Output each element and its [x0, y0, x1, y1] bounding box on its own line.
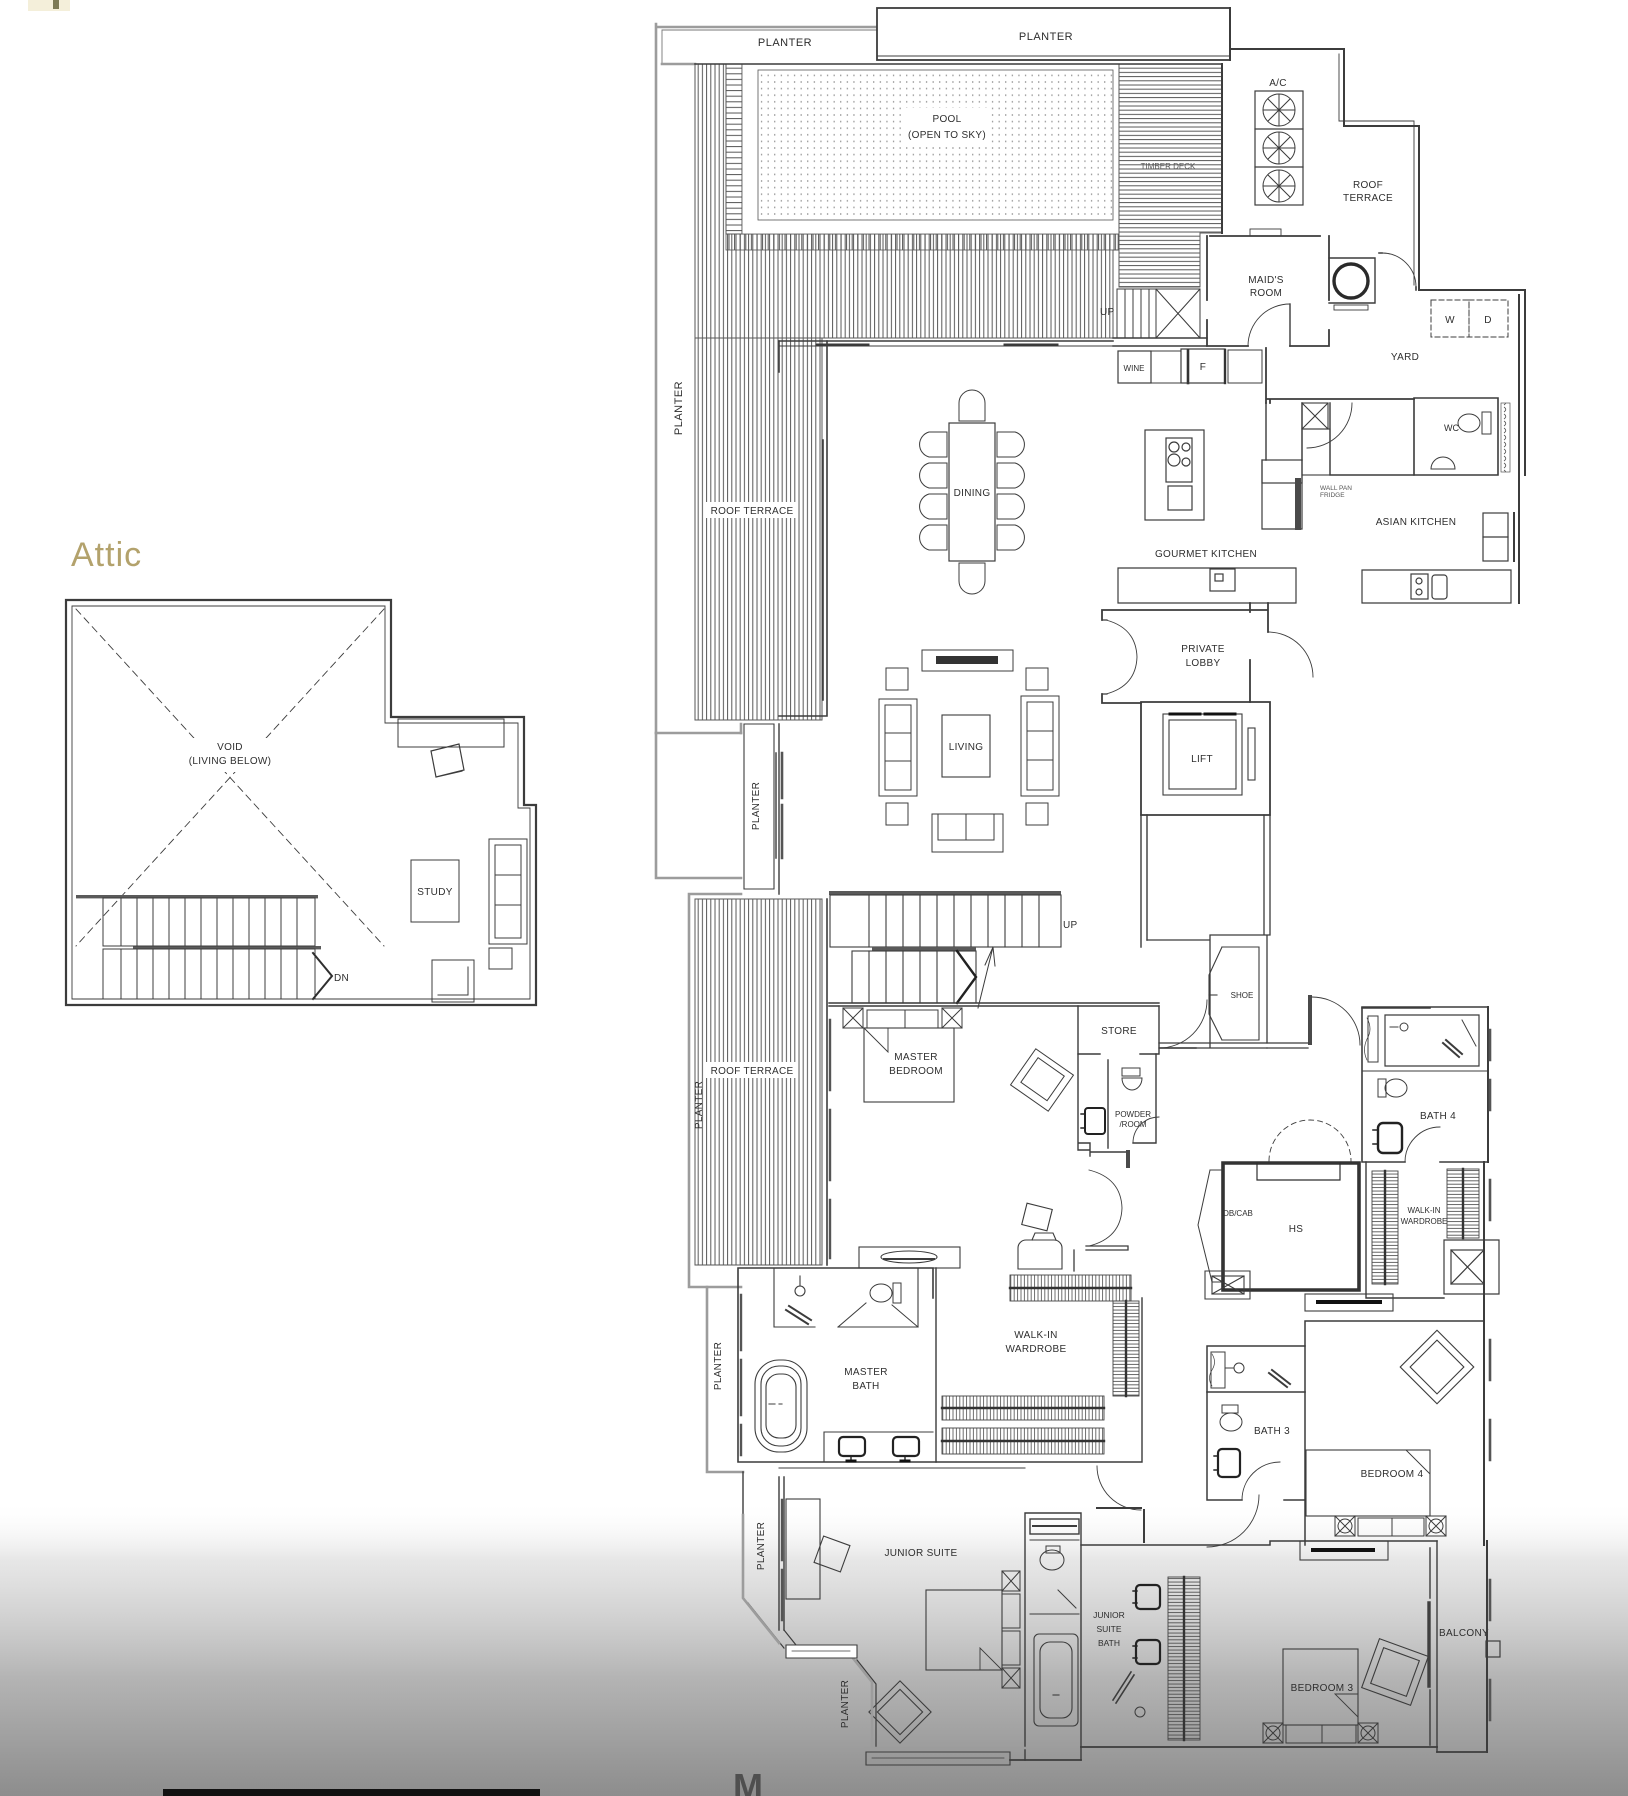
svg-text:F: F [1200, 362, 1206, 373]
svg-text:PLANTER: PLANTER [751, 782, 762, 830]
svg-text:ROOF: ROOF [1353, 180, 1383, 191]
svg-text:STUDY: STUDY [417, 887, 452, 898]
svg-text:LIFT: LIFT [1191, 754, 1213, 765]
svg-text:JUNIOR SUITE: JUNIOR SUITE [884, 1548, 957, 1559]
svg-text:BATH 4: BATH 4 [1420, 1111, 1456, 1122]
svg-text:PLANTER: PLANTER [756, 1522, 767, 1570]
svg-text:LIVING: LIVING [949, 742, 984, 753]
svg-text:HS: HS [1289, 1224, 1304, 1235]
svg-text:DB/CAB: DB/CAB [1223, 1209, 1253, 1218]
svg-text:DN: DN [334, 973, 349, 984]
svg-text:PLANTER: PLANTER [1019, 31, 1073, 43]
svg-text:ROOF TERRACE: ROOF TERRACE [711, 1066, 794, 1077]
svg-text:ROOF TERRACE: ROOF TERRACE [711, 506, 794, 517]
svg-text:MASTER: MASTER [894, 1052, 937, 1063]
svg-text:WALK-IN: WALK-IN [1014, 1330, 1057, 1341]
svg-text:MAID'S: MAID'S [1248, 275, 1283, 286]
svg-text:BATH: BATH [852, 1381, 879, 1392]
svg-text:MASTER: MASTER [844, 1367, 887, 1378]
svg-text:WC: WC [1444, 423, 1459, 433]
svg-text:JUNIOR: JUNIOR [1093, 1610, 1125, 1620]
svg-text:BEDROOM 3: BEDROOM 3 [1291, 1683, 1354, 1694]
svg-text:UP: UP [1100, 307, 1115, 318]
svg-text:POWDER: POWDER [1115, 1110, 1151, 1119]
svg-text:UP: UP [1063, 920, 1078, 931]
svg-text:SHOE: SHOE [1231, 991, 1254, 1000]
svg-text:WALL PAN: WALL PAN [1320, 485, 1352, 492]
svg-text:Attic: Attic [71, 536, 142, 574]
svg-text:A/C: A/C [1269, 78, 1287, 89]
svg-text:DINING: DINING [954, 488, 991, 499]
svg-text:TERRACE: TERRACE [1343, 193, 1393, 204]
svg-text:PLANTER: PLANTER [758, 37, 812, 49]
svg-text:(OPEN TO SKY): (OPEN TO SKY) [908, 130, 986, 141]
svg-text:ROOM: ROOM [1250, 288, 1282, 299]
svg-text:STORE: STORE [1101, 1026, 1137, 1037]
svg-text:PLANTER: PLANTER [713, 1342, 724, 1390]
svg-text:WINE: WINE [1124, 364, 1145, 373]
svg-text:BEDROOM 4: BEDROOM 4 [1361, 1469, 1424, 1480]
svg-text:VOID: VOID [217, 742, 243, 753]
svg-text:POOL: POOL [933, 114, 962, 125]
svg-text:WARDROBE: WARDROBE [1006, 1344, 1067, 1355]
svg-text:W: W [1445, 315, 1455, 326]
svg-text:PLANTER: PLANTER [840, 1680, 851, 1728]
svg-text:BEDROOM: BEDROOM [889, 1066, 943, 1077]
svg-text:BATH 3: BATH 3 [1254, 1426, 1290, 1437]
svg-text:PRIVATE: PRIVATE [1181, 644, 1224, 655]
svg-text:(LIVING BELOW): (LIVING BELOW) [189, 756, 272, 767]
svg-text:BATH: BATH [1098, 1638, 1120, 1648]
svg-text:SUITE: SUITE [1096, 1624, 1121, 1634]
svg-text:PLANTER: PLANTER [673, 381, 685, 435]
svg-text:/ROOM: /ROOM [1119, 1120, 1146, 1129]
svg-text:D: D [1484, 315, 1492, 326]
svg-text:M: M [733, 1766, 763, 1796]
svg-text:LOBBY: LOBBY [1186, 658, 1221, 669]
svg-text:GOURMET KITCHEN: GOURMET KITCHEN [1155, 549, 1257, 560]
svg-text:YARD: YARD [1391, 352, 1419, 363]
svg-text:PLANTER: PLANTER [694, 1081, 705, 1129]
svg-text:WARDROBE: WARDROBE [1401, 1217, 1448, 1226]
svg-text:WALK-IN: WALK-IN [1407, 1206, 1440, 1215]
svg-text:FRIDGE: FRIDGE [1320, 492, 1345, 499]
svg-text:BALCONY: BALCONY [1439, 1628, 1489, 1639]
svg-text:TIMBER DECK: TIMBER DECK [1141, 162, 1196, 171]
svg-text:ASIAN KITCHEN: ASIAN KITCHEN [1376, 517, 1457, 528]
